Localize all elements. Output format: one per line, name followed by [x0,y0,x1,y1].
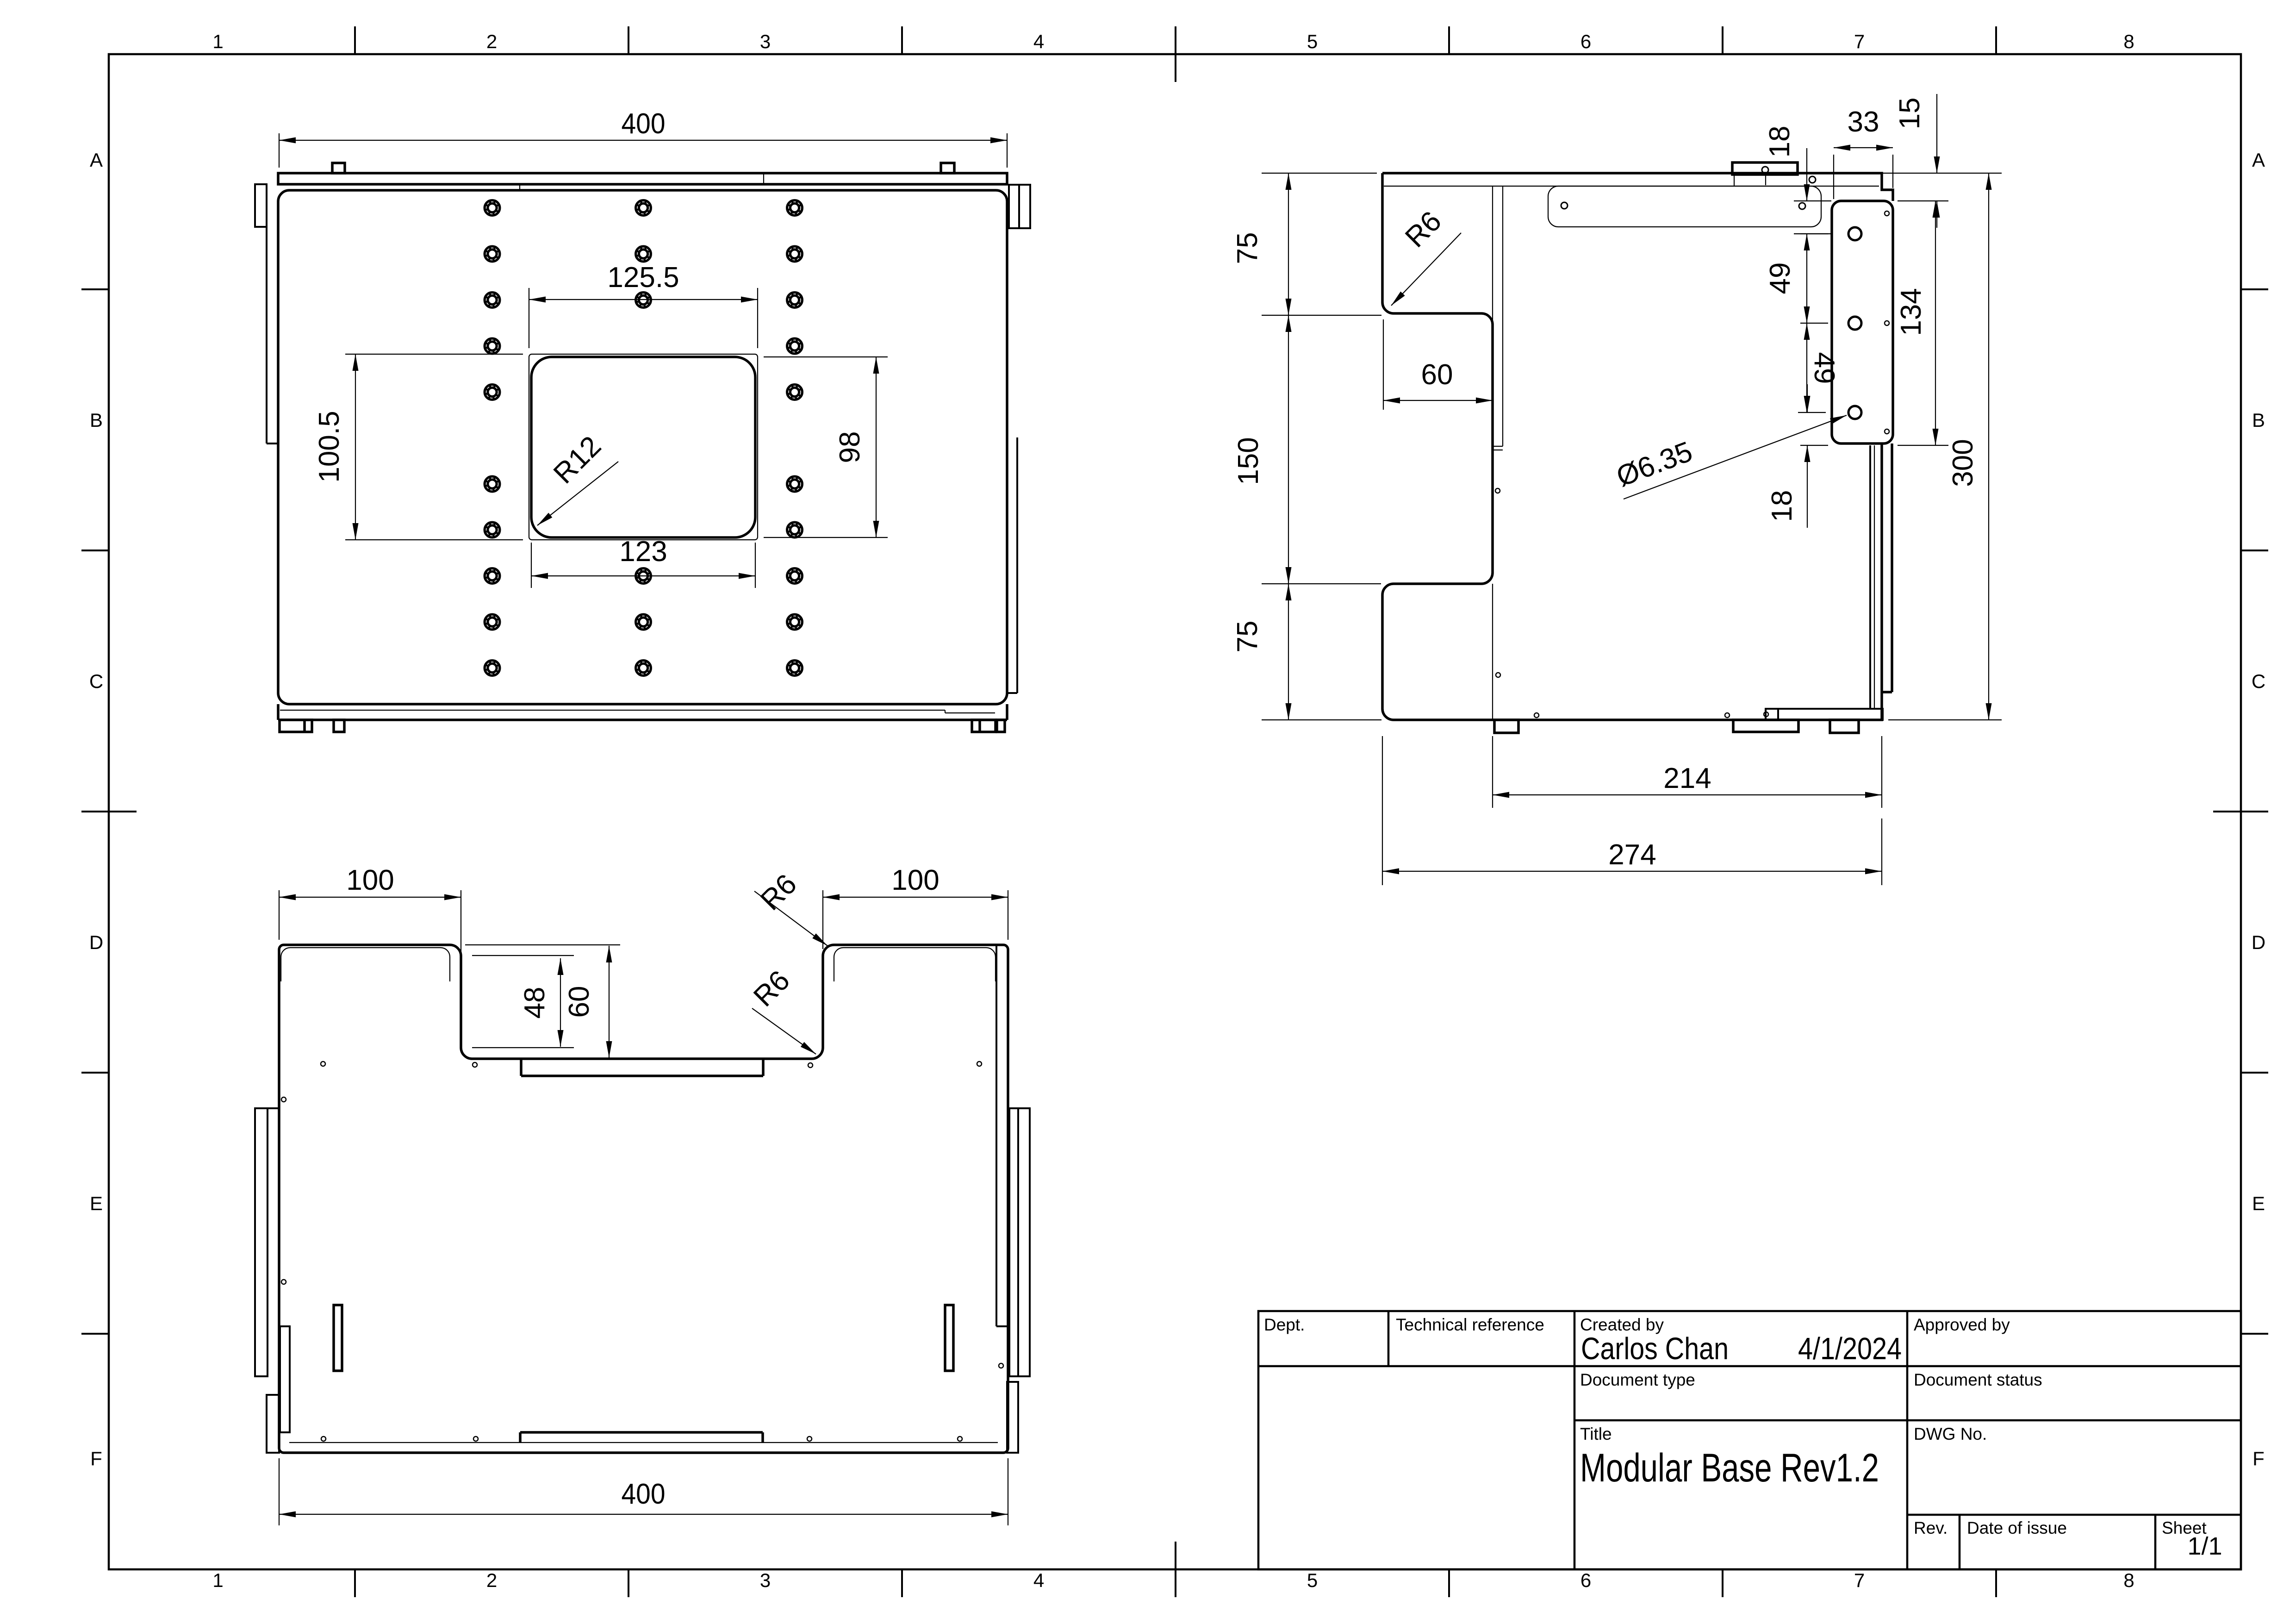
svg-text:E: E [90,1193,103,1214]
svg-text:125.5: 125.5 [607,262,679,294]
svg-text:18: 18 [1766,490,1798,522]
svg-text:15: 15 [1894,98,1926,130]
svg-text:49: 49 [1764,262,1796,294]
svg-text:C: C [89,670,103,692]
svg-text:8: 8 [2123,31,2134,52]
svg-text:4/1/2024: 4/1/2024 [1798,1331,1902,1366]
svg-text:123: 123 [619,536,667,568]
svg-text:3: 3 [760,1569,771,1591]
svg-text:1: 1 [212,1569,223,1591]
svg-text:2: 2 [486,1569,497,1591]
svg-text:Title: Title [1580,1424,1612,1443]
svg-text:7: 7 [1854,1569,1865,1591]
svg-text:60: 60 [1421,359,1453,391]
svg-text:Modular Base Rev1.2: Modular Base Rev1.2 [1580,1446,1879,1490]
svg-text:F: F [90,1448,102,1469]
svg-text:Rev.: Rev. [1914,1518,1948,1537]
svg-text:75: 75 [1232,621,1263,653]
svg-text:A: A [2252,149,2265,171]
svg-text:18: 18 [1764,126,1796,158]
svg-text:Technical reference: Technical reference [1396,1315,1544,1334]
svg-text:150: 150 [1232,437,1264,485]
svg-text:D: D [2252,931,2265,953]
svg-text:4: 4 [1033,31,1044,52]
svg-text:7: 7 [1854,31,1865,52]
svg-text:F: F [2252,1448,2265,1469]
svg-text:A: A [90,149,103,171]
svg-text:60: 60 [563,986,595,1018]
svg-text:C: C [2252,670,2265,692]
svg-text:400: 400 [622,1478,666,1510]
svg-text:33: 33 [1848,106,1879,138]
svg-text:Document status: Document status [1914,1370,2042,1389]
svg-text:3: 3 [760,31,771,52]
svg-text:Dept.: Dept. [1264,1315,1305,1334]
svg-text:100: 100 [891,864,939,896]
svg-text:100: 100 [346,864,394,896]
svg-text:5: 5 [1307,1569,1318,1591]
svg-text:274: 274 [1608,839,1656,871]
svg-text:1/1: 1/1 [2187,1532,2222,1560]
svg-text:6: 6 [1580,1569,1591,1591]
svg-text:75: 75 [1232,232,1263,264]
svg-text:49: 49 [1808,352,1840,384]
svg-text:4: 4 [1033,1569,1044,1591]
svg-text:98: 98 [834,431,866,463]
svg-text:2: 2 [486,31,497,52]
svg-text:400: 400 [622,108,666,140]
svg-text:Date of issue: Date of issue [1967,1518,2067,1537]
svg-text:E: E [2252,1193,2265,1214]
svg-text:100.5: 100.5 [313,411,345,482]
svg-text:134: 134 [1895,288,1927,336]
svg-text:B: B [2252,409,2265,431]
svg-text:6: 6 [1580,31,1591,52]
svg-text:8: 8 [2123,1569,2134,1591]
svg-text:214: 214 [1663,762,1711,794]
svg-text:300: 300 [1947,439,1979,487]
svg-text:48: 48 [519,987,551,1019]
svg-text:Document type: Document type [1580,1370,1695,1389]
svg-text:5: 5 [1307,31,1318,52]
svg-text:1: 1 [212,31,223,52]
svg-text:Carlos Chan: Carlos Chan [1581,1331,1729,1366]
svg-text:B: B [90,409,103,431]
svg-text:DWG No.: DWG No. [1914,1424,1987,1443]
svg-text:D: D [89,931,103,953]
svg-text:Approved by: Approved by [1914,1315,2010,1334]
